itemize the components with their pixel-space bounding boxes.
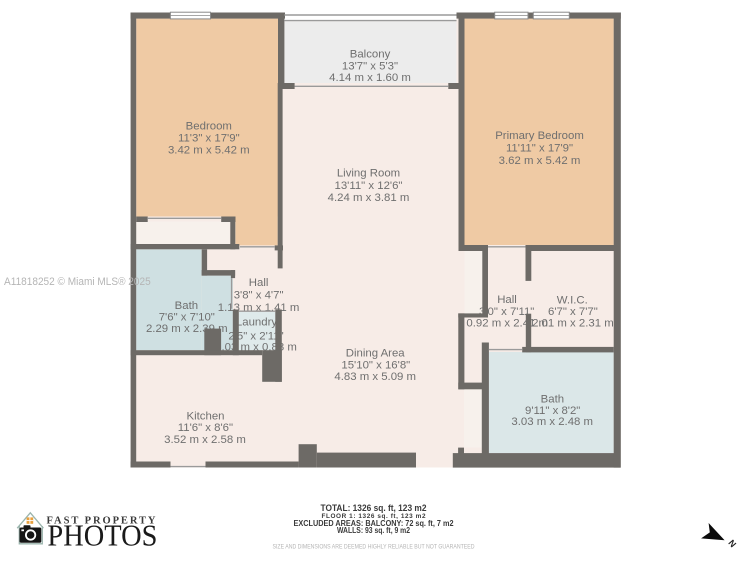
svg-text:Hall: Hall [497, 294, 517, 306]
svg-text:3.62 m x 5.42 m: 3.62 m x 5.42 m [499, 155, 581, 167]
svg-text:11'11" x 17'9": 11'11" x 17'9" [506, 143, 573, 155]
svg-text:Balcony: Balcony [350, 49, 391, 61]
svg-text:2.01 m x 2.31 m: 2.01 m x 2.31 m [532, 318, 614, 330]
svg-text:SIZE AND DIMENSIONS ARE DEEMED: SIZE AND DIMENSIONS ARE DEEMED HIGHLY RE… [273, 543, 475, 550]
svg-text:A11818252 © Miami MLS® 2025: A11818252 © Miami MLS® 2025 [4, 276, 151, 288]
svg-text:3.42 m x 5.42 m: 3.42 m x 5.42 m [168, 144, 250, 156]
svg-text:Living Room: Living Room [337, 167, 400, 179]
svg-text:PHOTOS: PHOTOS [47, 518, 157, 553]
svg-text:13'11" x 12'6": 13'11" x 12'6" [335, 180, 403, 192]
svg-text:Hall: Hall [249, 277, 269, 289]
svg-text:WALLS: 93 sq. ft, 9 m2: WALLS: 93 sq. ft, 9 m2 [337, 526, 410, 535]
svg-text:3.03 m x 2.48 m: 3.03 m x 2.48 m [511, 416, 593, 428]
svg-text:11'3" x 17'9": 11'3" x 17'9" [178, 132, 240, 144]
svg-text:11'6" x 8'6": 11'6" x 8'6" [178, 422, 233, 434]
svg-text:TOTAL: 1326 sq. ft, 123 m2: TOTAL: 1326 sq. ft, 123 m2 [321, 503, 427, 513]
svg-text:Laundry: Laundry [236, 317, 277, 329]
svg-text:6'7" x 7'7": 6'7" x 7'7" [548, 306, 598, 318]
svg-text:1.13 m x 1.41 m: 1.13 m x 1.41 m [218, 302, 300, 314]
svg-text:W.I.C.: W.I.C. [557, 295, 588, 307]
svg-text:3.52 m x 2.58 m: 3.52 m x 2.58 m [164, 434, 246, 446]
svg-text:7'6" x 7'10": 7'6" x 7'10" [159, 312, 215, 324]
svg-text:Bath: Bath [175, 300, 198, 312]
svg-text:Dining Area: Dining Area [346, 348, 406, 360]
svg-text:3'8" x 4'7": 3'8" x 4'7" [234, 289, 284, 301]
svg-text:4.83 m x 5.09 m: 4.83 m x 5.09 m [334, 371, 416, 383]
svg-text:15'10" x 16'8": 15'10" x 16'8" [341, 360, 410, 372]
svg-text:Kitchen: Kitchen [187, 410, 225, 422]
svg-text:4.14 m x 1.60 m: 4.14 m x 1.60 m [329, 72, 411, 84]
svg-text:Primary Bedroom: Primary Bedroom [495, 130, 584, 142]
svg-text:Bath: Bath [541, 394, 564, 406]
svg-text:Bedroom: Bedroom [186, 121, 232, 133]
svg-text:13'7" x 5'3": 13'7" x 5'3" [342, 60, 398, 72]
svg-text:4.24 m x 3.81 m: 4.24 m x 3.81 m [328, 192, 410, 204]
